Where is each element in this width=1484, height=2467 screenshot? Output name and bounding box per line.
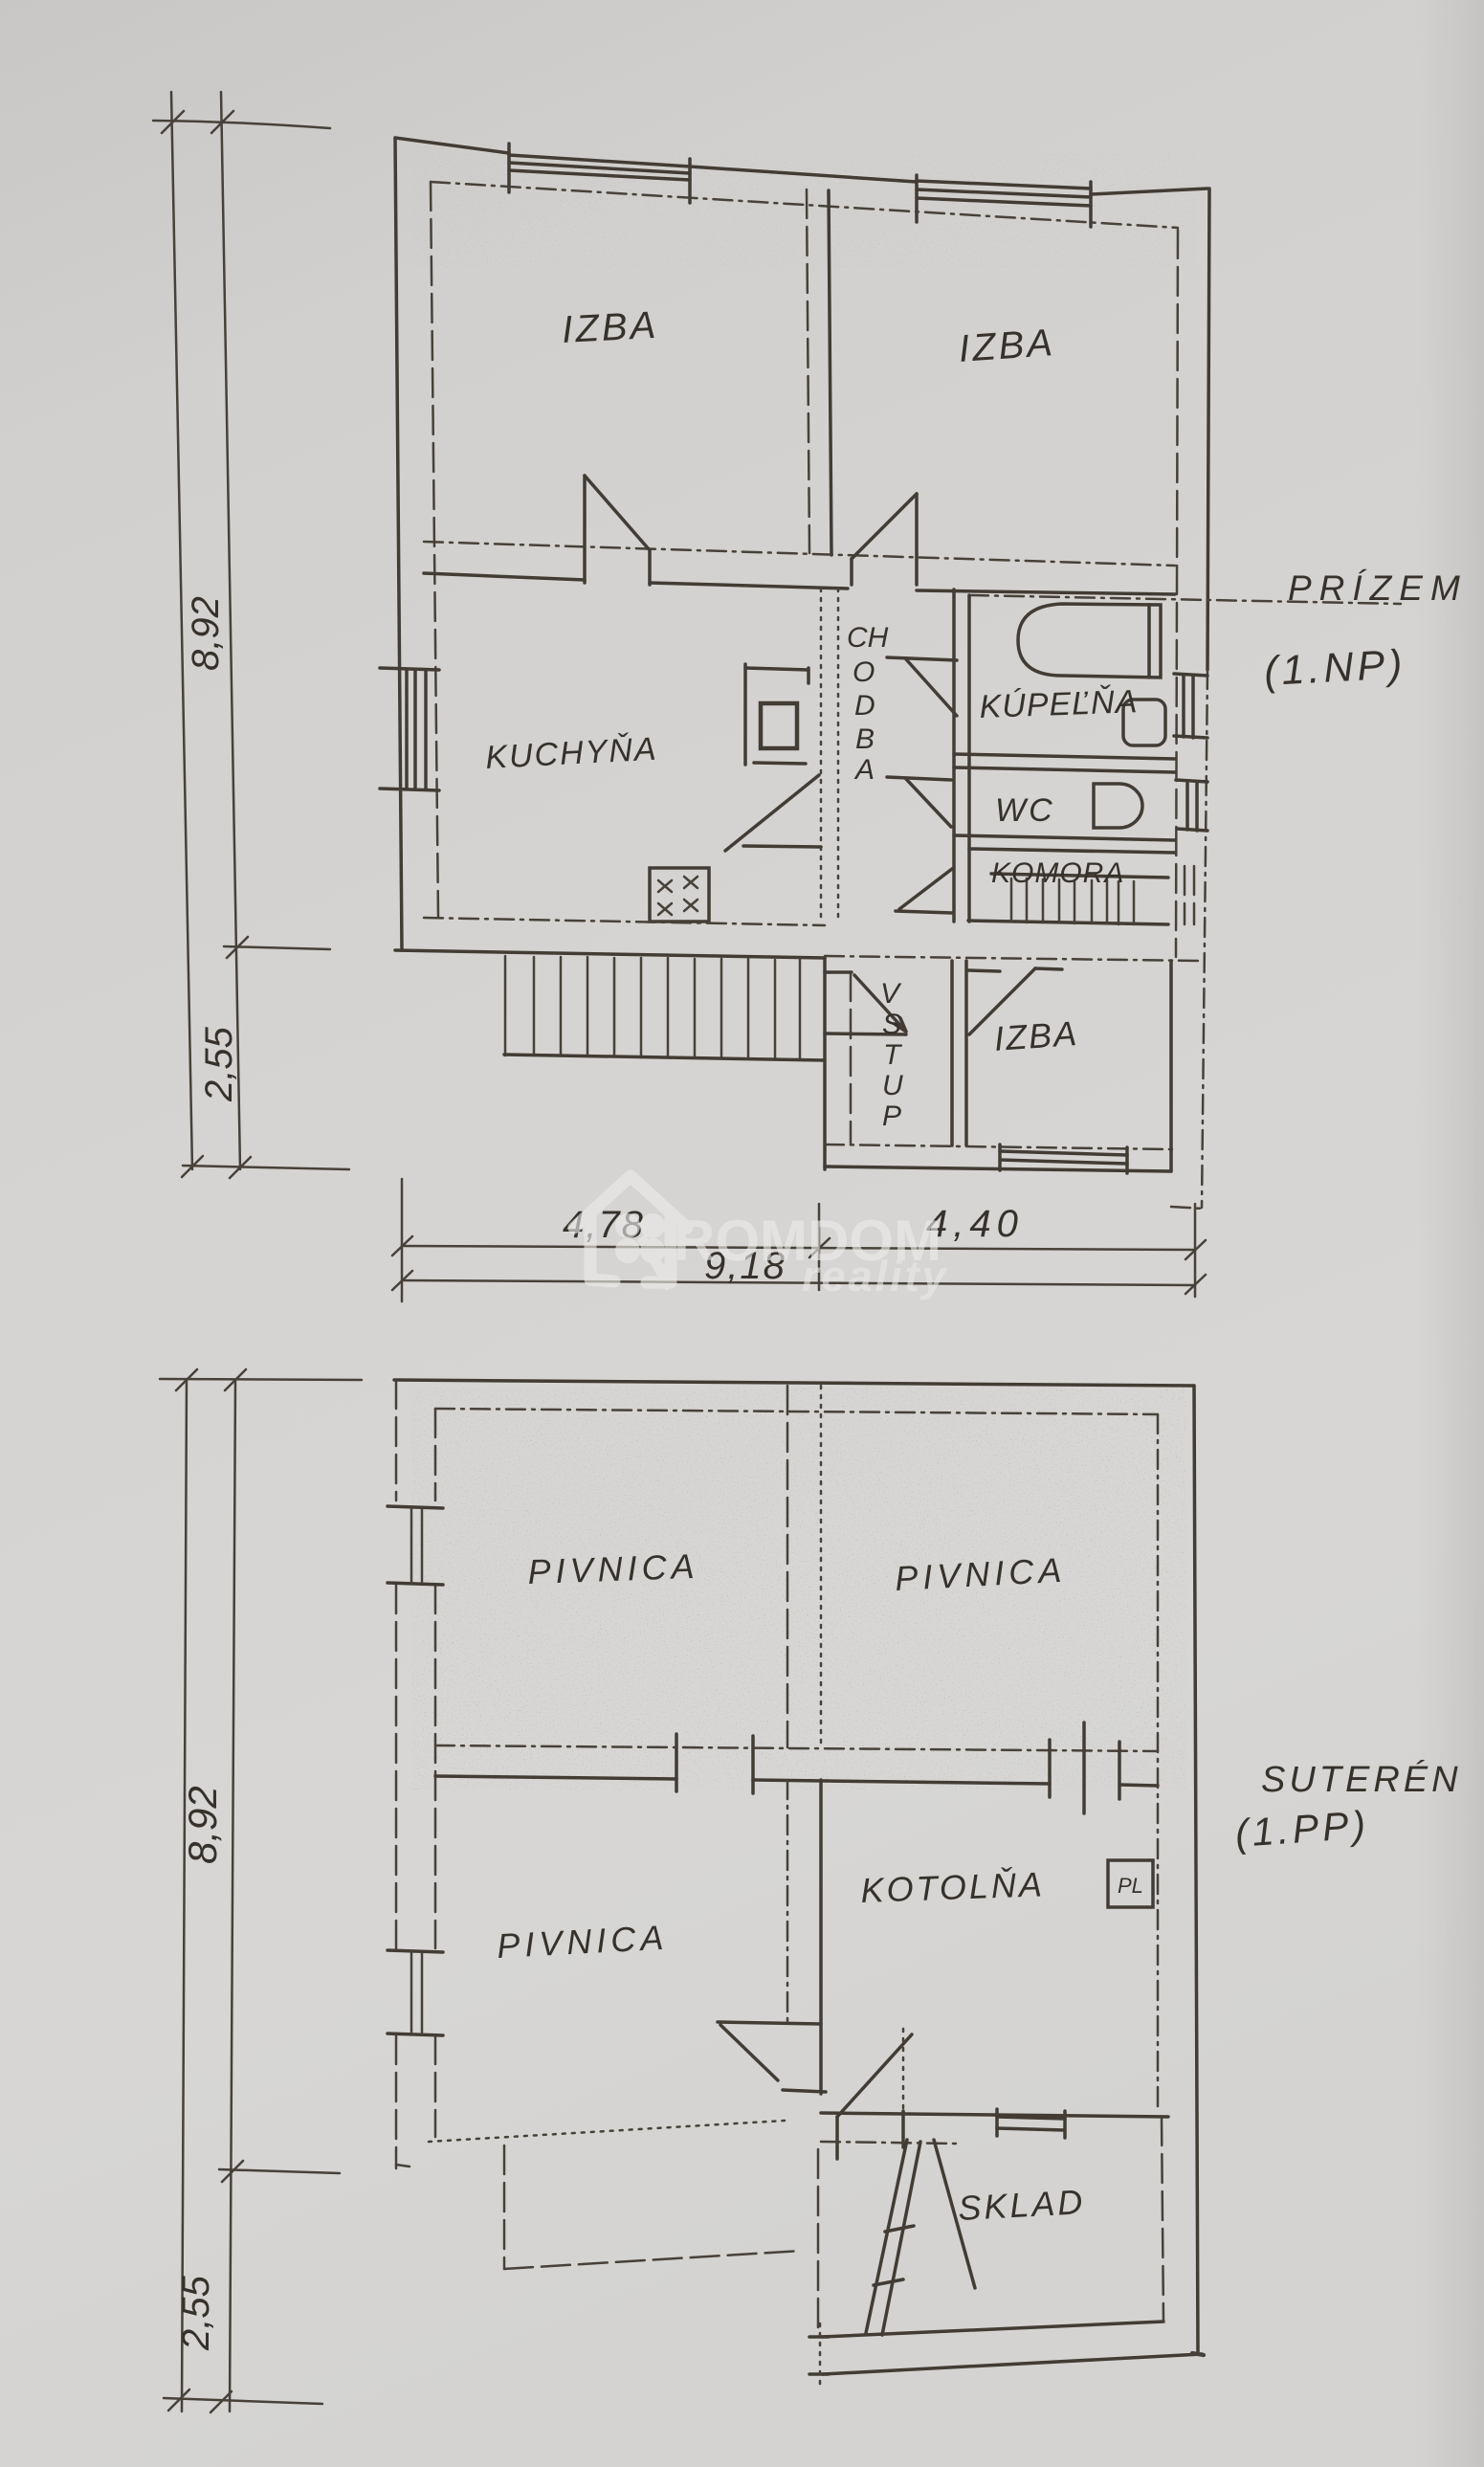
svg-text:SKLAD: SKLAD [957,2182,1086,2228]
svg-text:KOTOLŇA: KOTOLŇA [860,1864,1046,1910]
svg-text:(1.NP): (1.NP) [1263,641,1407,695]
svg-text:O: O [853,656,875,688]
svg-text:SUTERÉN: SUTERÉN [1261,1759,1462,1800]
svg-text:2,55: 2,55 [175,2275,217,2351]
svg-text:CH: CH [847,622,889,654]
svg-text:2,55: 2,55 [198,1026,240,1102]
svg-text:U: U [882,1070,903,1101]
svg-text:P: P [882,1100,901,1132]
svg-text:B: B [855,723,875,755]
svg-text:PIVNICA: PIVNICA [527,1546,699,1591]
svg-text:WC: WC [995,792,1055,829]
svg-text:IZBA: IZBA [993,1013,1080,1058]
svg-text:V: V [880,978,902,1010]
svg-text:8,92: 8,92 [180,1786,225,1864]
svg-text:D: D [854,690,875,722]
svg-text:KÚPEĽŇA: KÚPEĽŇA [979,683,1139,725]
svg-text:IZBA: IZBA [958,322,1057,370]
svg-text:reality: reality [802,1252,949,1300]
svg-text:PRÍZEM: PRÍZEM [1288,568,1468,608]
svg-text:(1.PP): (1.PP) [1233,1802,1370,1856]
svg-text:T: T [883,1039,903,1071]
svg-text:A: A [853,754,875,786]
svg-text:IZBA: IZBA [561,304,659,351]
svg-text:PL: PL [1118,1874,1143,1898]
svg-text:8,92: 8,92 [185,596,227,671]
svg-text:KOMORA: KOMORA [991,857,1124,889]
svg-text:S: S [882,1009,901,1040]
